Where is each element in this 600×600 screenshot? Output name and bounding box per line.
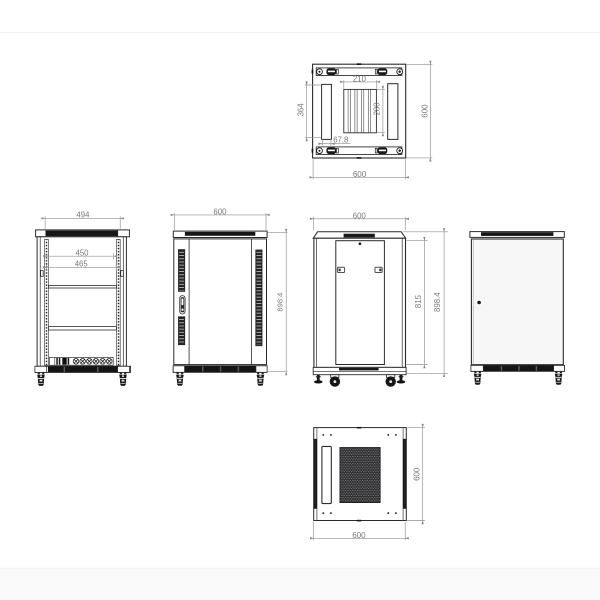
svg-text:364: 364 <box>296 103 305 117</box>
svg-text:450: 450 <box>75 249 89 258</box>
svg-text:494: 494 <box>76 211 90 220</box>
svg-text:600: 600 <box>213 207 227 216</box>
svg-text:600: 600 <box>353 170 367 179</box>
svg-text:280: 280 <box>373 102 382 116</box>
svg-text:600: 600 <box>353 211 367 220</box>
svg-text:600: 600 <box>413 467 422 481</box>
svg-text:600: 600 <box>421 104 430 118</box>
svg-text:210: 210 <box>353 74 367 83</box>
svg-text:898.4: 898.4 <box>433 292 442 312</box>
svg-text:67.8: 67.8 <box>333 136 348 145</box>
svg-text:815: 815 <box>414 294 423 308</box>
svg-text:898.4: 898.4 <box>276 293 285 312</box>
svg-text:600: 600 <box>352 531 366 540</box>
svg-text:465: 465 <box>75 260 89 269</box>
